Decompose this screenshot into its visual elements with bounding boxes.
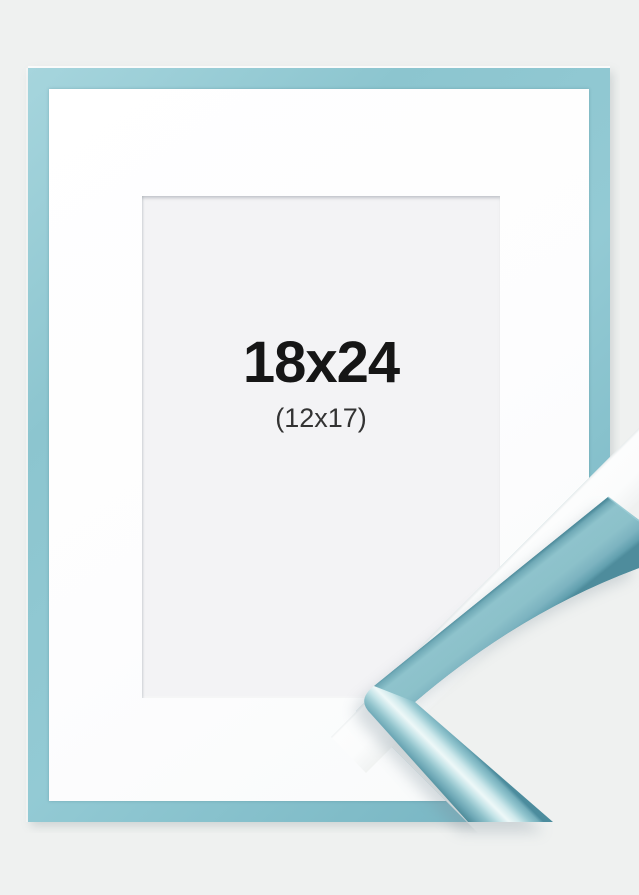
corner-sample-end-cut-edge (608, 497, 639, 521)
size-label: 18x24 (243, 334, 399, 392)
inner-size-label: (12x17) (275, 402, 367, 434)
picture-opening: 18x24 (12x17) (142, 196, 500, 698)
mat-board: 18x24 (12x17) (49, 89, 589, 801)
framed-picture-photo: 18x24 (12x17) (28, 68, 610, 822)
frame-product-image: 18x24 (12x17) (0, 0, 639, 895)
